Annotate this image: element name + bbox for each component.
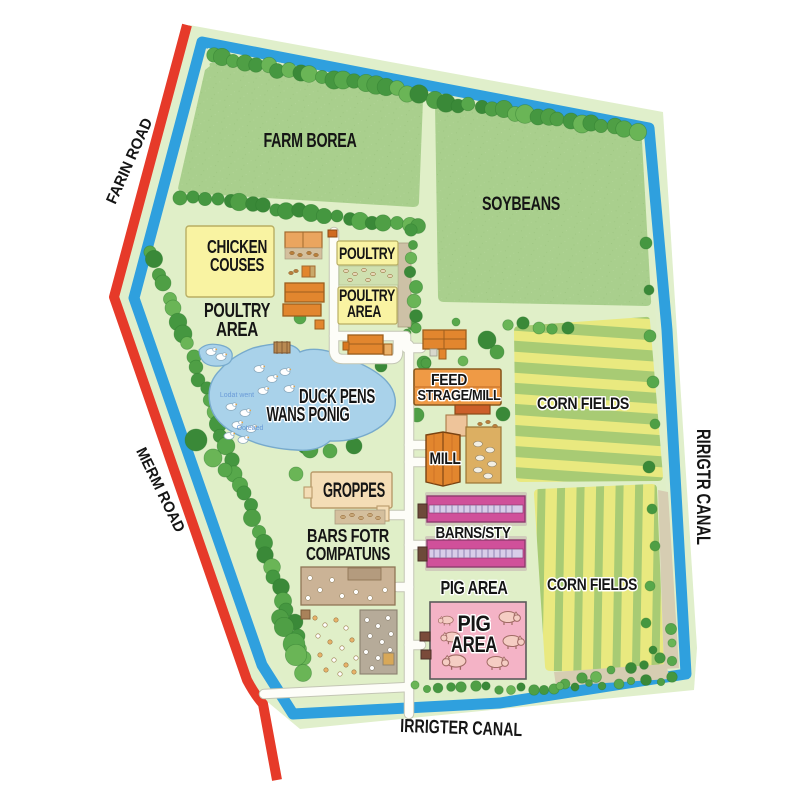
svg-text:RIRIGTR CANAL: RIRIGTR CANAL	[692, 429, 713, 545]
svg-text:Ooteaed: Ooteaed	[237, 425, 264, 432]
svg-text:AREA: AREA	[216, 319, 258, 341]
svg-text:SOYBEANS: SOYBEANS	[482, 193, 560, 215]
svg-text:COUSES: COUSES	[210, 254, 264, 275]
svg-text:POULTRY: POULTRY	[339, 244, 396, 263]
svg-text:MILL: MILL	[430, 449, 461, 468]
svg-text:CORN FIELDS: CORN FIELDS	[537, 394, 629, 413]
svg-text:CORN FIELDS: CORN FIELDS	[547, 575, 637, 594]
svg-text:Lodat went: Lodat went	[220, 392, 254, 399]
svg-text:AREA: AREA	[451, 632, 497, 657]
svg-text:GROPPES: GROPPES	[323, 479, 385, 502]
svg-text:COMPATUNS: COMPATUNS	[306, 543, 390, 564]
svg-text:PIG AREA: PIG AREA	[441, 578, 508, 598]
svg-text:AREA: AREA	[347, 302, 381, 321]
svg-text:BARNS/STY: BARNS/STY	[436, 525, 512, 542]
svg-text:IRRIGTER CANAL: IRRIGTER CANAL	[400, 716, 523, 741]
svg-text:WANS PONIG: WANS PONIG	[267, 404, 350, 426]
svg-text:STRAGE/MILL: STRAGE/MILL	[418, 387, 501, 404]
svg-text:FARM BOREA: FARM BOREA	[264, 130, 357, 152]
